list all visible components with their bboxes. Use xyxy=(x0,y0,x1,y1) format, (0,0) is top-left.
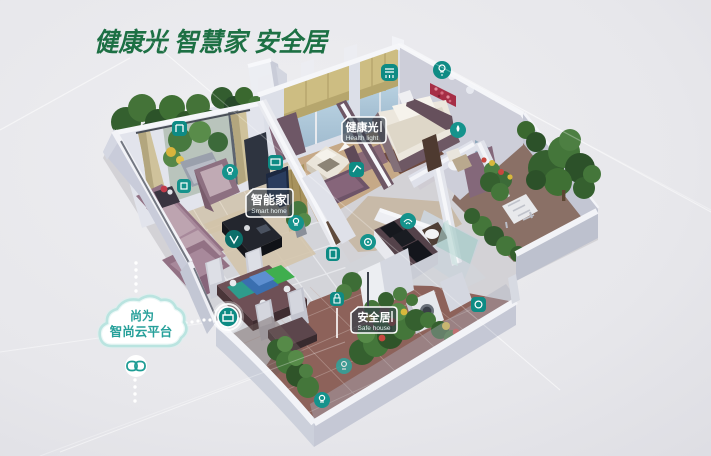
svg-text:Health light: Health light xyxy=(346,135,379,142)
svg-text:智能家: 智能家 xyxy=(250,192,288,207)
svg-text:健康光 智慧家 安全居: 健康光 智慧家 安全居 xyxy=(94,27,330,57)
svg-text:Safe house: Safe house xyxy=(358,325,391,332)
svg-text:尚为: 尚为 xyxy=(130,308,154,323)
svg-text:健康光: 健康光 xyxy=(346,120,379,134)
svg-text:安全居: 安全居 xyxy=(358,310,391,324)
svg-text:Smart home: Smart home xyxy=(251,208,287,215)
svg-text:智尚云平台: 智尚云平台 xyxy=(109,324,173,339)
